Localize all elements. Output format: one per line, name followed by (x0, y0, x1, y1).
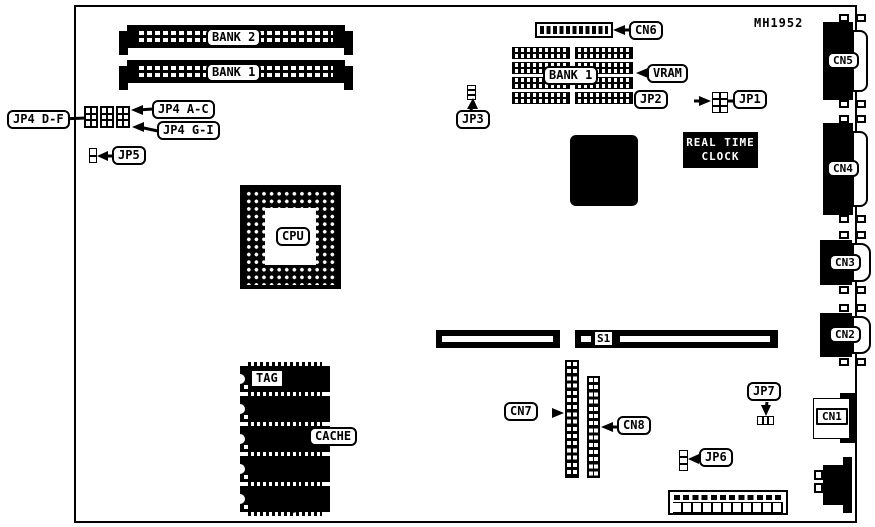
jp4-ac-label: JP4 A-C (152, 100, 215, 119)
bank1-label: BANK 1 (206, 63, 261, 82)
cn4-label: CN4 (827, 160, 859, 177)
tag-label: TAG (250, 369, 284, 388)
slot-opening (620, 336, 770, 342)
vram-chip (512, 47, 570, 59)
cn6-connector (535, 22, 613, 38)
cache-chip (240, 486, 330, 512)
cn8-connector (587, 376, 600, 478)
simm-clip (344, 31, 353, 55)
edge-tab (839, 358, 849, 366)
edge-tab (839, 215, 849, 223)
cn6-label: CN6 (629, 21, 663, 40)
cn1-label: CN1 (816, 408, 848, 425)
jp5-label: JP5 (112, 146, 146, 165)
jp6-jumper (679, 450, 688, 471)
vram-bank-label: BANK 1 (543, 66, 598, 85)
motherboard-diagram: MH1952 BANK 2 BANK 1 JP4 D-F JP4 A-C JP4… (0, 0, 875, 527)
power-pin (814, 483, 823, 493)
slot-opening (442, 336, 553, 342)
edge-tab (839, 304, 849, 312)
power-connector-step (843, 505, 852, 513)
jp4-block (100, 106, 114, 128)
cpu-label: CPU (276, 227, 310, 246)
part-number-text: MH1952 (754, 16, 803, 30)
cn7-connector (565, 360, 579, 478)
edge-tab (856, 115, 866, 123)
edge-tab (839, 100, 849, 108)
edge-tab (856, 100, 866, 108)
simm-clip (119, 31, 128, 55)
bottom-pin-header (668, 490, 788, 515)
edge-tab (839, 115, 849, 123)
rtc-label-line2: CLOCK (683, 150, 758, 164)
simm-clip (344, 66, 353, 90)
jp4-block (116, 106, 130, 128)
pin-row (673, 502, 783, 513)
simm-clip (119, 66, 128, 90)
edge-tab (856, 304, 866, 312)
jp4-block (84, 106, 98, 128)
rtc-label-line1: REAL TIME (683, 136, 758, 150)
jp5-jumper (89, 148, 97, 163)
cache-label: CACHE (309, 427, 357, 446)
power-connector (823, 465, 852, 505)
bank2-label: BANK 2 (206, 28, 261, 47)
edge-tab (856, 14, 866, 22)
vram-chip (575, 92, 633, 104)
s1-label: S1 (593, 330, 614, 347)
edge-tab (839, 14, 849, 22)
cn5-label: CN5 (827, 52, 859, 69)
cn8-label: CN8 (617, 416, 651, 435)
edge-tab (856, 215, 866, 223)
jp3-jumper (467, 85, 476, 100)
edge-tab (856, 286, 866, 294)
cache-chip (240, 456, 330, 482)
jp7-label: JP7 (747, 382, 781, 401)
cn7-label: CN7 (504, 402, 538, 421)
edge-tab (856, 358, 866, 366)
slot-opening (581, 336, 591, 342)
jp4-jumper-block (84, 106, 130, 128)
edge-tab (839, 286, 849, 294)
jp2-label: JP2 (634, 90, 668, 109)
jp3-label: JP3 (456, 110, 490, 129)
jp6-label: JP6 (699, 448, 733, 467)
power-pin (814, 470, 823, 480)
vram-chip (512, 92, 570, 104)
pin-row (674, 495, 782, 500)
power-connector-step (843, 457, 852, 465)
expansion-slot (436, 330, 560, 348)
qfp-chip (570, 135, 638, 206)
jp1-label: JP1 (733, 90, 767, 109)
vram-label: VRAM (647, 64, 688, 83)
edge-tab (839, 231, 849, 239)
cn3-label: CN3 (829, 254, 861, 271)
cn2-label: CN2 (829, 326, 861, 343)
vram-chip (575, 47, 633, 59)
real-time-clock-chip: REAL TIME CLOCK (683, 132, 758, 168)
jp7-jumper (757, 416, 774, 425)
jp1-jp2-jumper (712, 92, 728, 113)
jp4-gi-label: JP4 G-I (157, 121, 220, 140)
jp4-df-label: JP4 D-F (7, 110, 70, 129)
edge-tab (856, 231, 866, 239)
cache-chip (240, 396, 330, 422)
